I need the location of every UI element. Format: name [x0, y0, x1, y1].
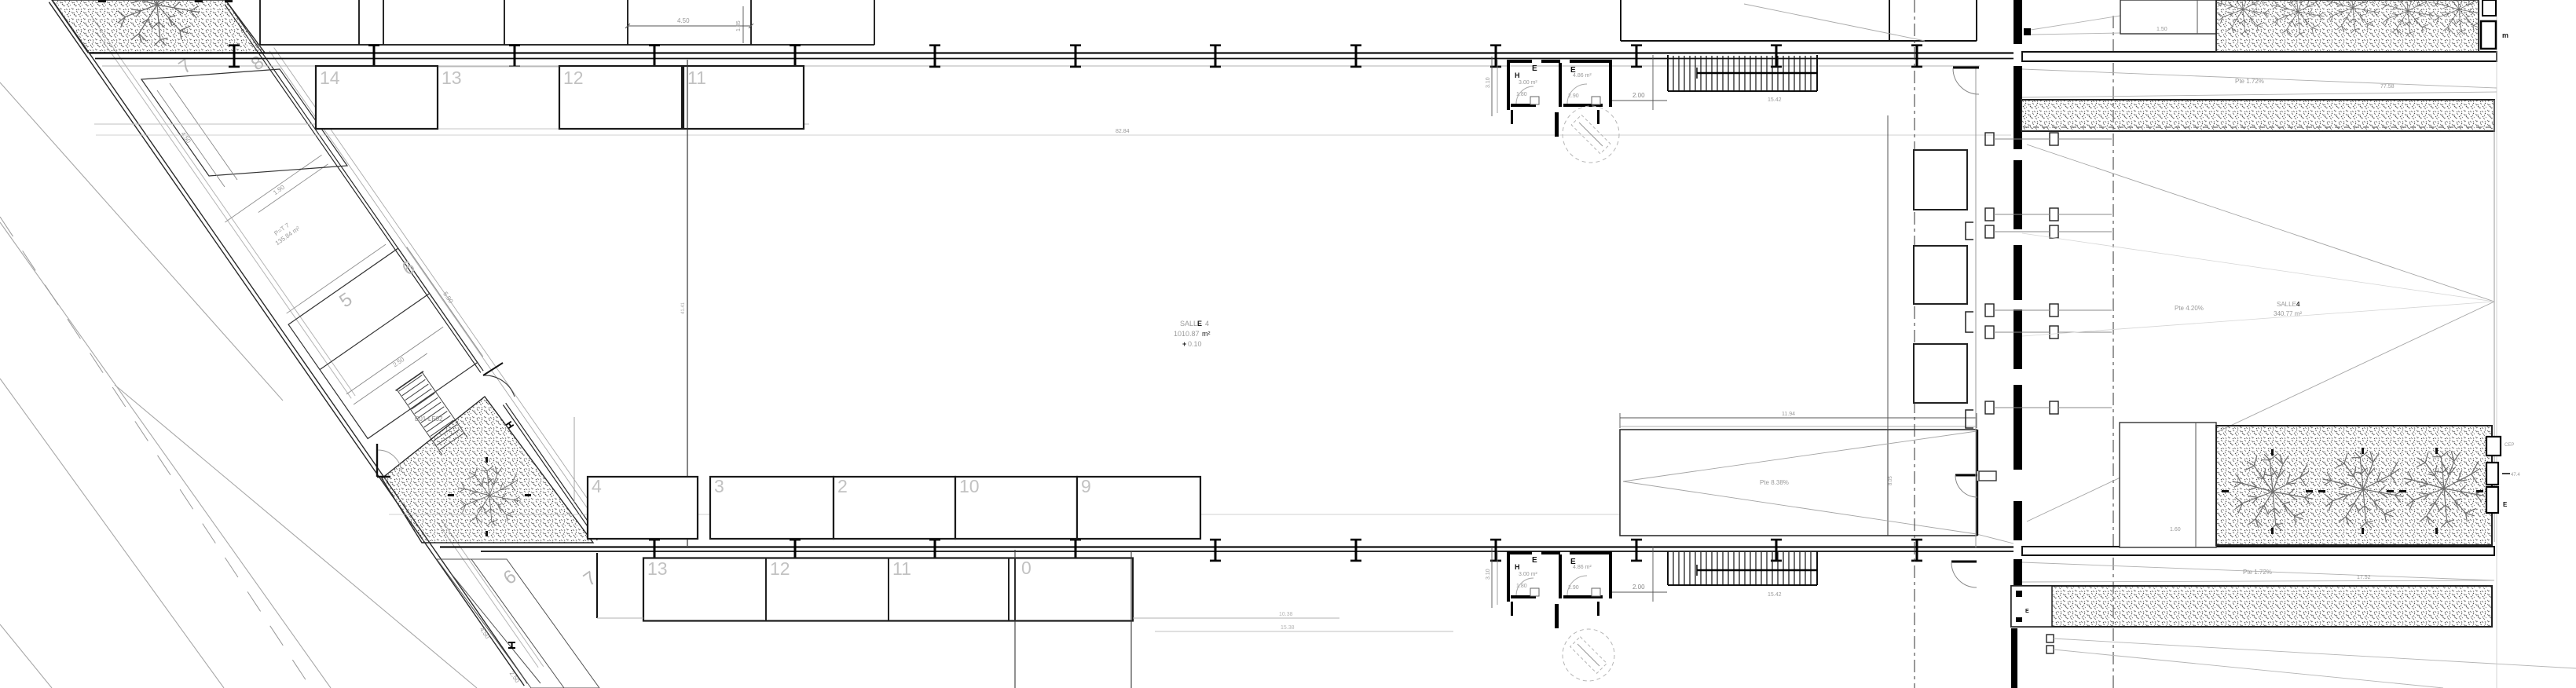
svg-text:m²: m²	[1202, 330, 1211, 338]
svg-text:1.50: 1.50	[2156, 27, 2167, 32]
svg-text:1.60: 1.60	[2170, 527, 2181, 532]
svg-text:12: 12	[563, 68, 584, 88]
svg-text:SALLE: SALLE	[2277, 301, 2296, 308]
svg-text:E: E	[2025, 609, 2029, 614]
svg-text:1010.87: 1010.87	[1174, 330, 1200, 338]
svg-text:Pte 1.72%: Pte 1.72%	[2243, 569, 2272, 576]
svg-text:0.10: 0.10	[1188, 340, 1202, 348]
svg-text:E: E	[1197, 320, 1202, 328]
svg-text:4: 4	[1205, 320, 1209, 328]
svg-text:15.42: 15.42	[1768, 97, 1782, 103]
svg-text:15.42: 15.42	[1768, 592, 1782, 598]
svg-text:77.58: 77.58	[2380, 84, 2395, 90]
svg-text:+: +	[1182, 340, 1186, 348]
svg-text:13: 13	[442, 68, 462, 88]
svg-text:12: 12	[770, 558, 790, 579]
svg-text:4: 4	[592, 476, 602, 496]
svg-text:Pte 1.72%: Pte 1.72%	[2235, 78, 2264, 85]
svg-text:3: 3	[714, 476, 724, 496]
svg-text:E: E	[2503, 501, 2508, 508]
svg-text:4: 4	[2296, 301, 2300, 308]
svg-text:SALL: SALL	[1180, 320, 1197, 328]
svg-text:10.38: 10.38	[1279, 612, 1293, 617]
svg-text:H: H	[1515, 71, 1520, 79]
svg-text:47.4: 47.4	[2511, 473, 2520, 478]
svg-text:4.86 m²: 4.86 m²	[1573, 73, 1592, 79]
svg-text:10: 10	[959, 476, 980, 496]
svg-text:8.05: 8.05	[1889, 476, 1893, 485]
svg-text:14: 14	[320, 68, 340, 88]
svg-text:2.00: 2.00	[1632, 584, 1645, 591]
svg-text:E: E	[1532, 556, 1537, 565]
svg-text:2: 2	[837, 476, 848, 496]
svg-text:4.86 m²: 4.86 m²	[1573, 565, 1592, 570]
svg-text:2.00: 2.00	[1632, 92, 1645, 99]
svg-text:4.50: 4.50	[677, 17, 690, 24]
svg-text:0: 0	[1021, 558, 1031, 578]
svg-text:11.94: 11.94	[1782, 412, 1795, 417]
svg-text:Pte 8.38%: Pte 8.38%	[1760, 479, 1789, 486]
svg-text:3.10: 3.10	[1486, 569, 1491, 580]
svg-text:m: m	[2502, 31, 2508, 39]
svg-text:41.41: 41.41	[681, 302, 686, 314]
svg-text:E01-LE02: E01-LE02	[415, 415, 443, 423]
svg-text:1.85: 1.85	[736, 20, 742, 31]
svg-text:11: 11	[892, 558, 911, 579]
svg-text:340.77 m²: 340.77 m²	[2274, 310, 2302, 317]
svg-text:H: H	[1515, 563, 1520, 571]
svg-text:Pte 4.20%: Pte 4.20%	[2175, 305, 2204, 312]
svg-text:9: 9	[1081, 476, 1091, 496]
svg-text:3.10: 3.10	[1486, 77, 1491, 88]
svg-text:E: E	[1532, 64, 1537, 73]
svg-text:3.00 m²: 3.00 m²	[1519, 572, 1537, 577]
svg-text:CEP: CEP	[2505, 443, 2514, 448]
svg-text:17.52: 17.52	[2357, 575, 2371, 580]
svg-text:11: 11	[687, 68, 706, 88]
svg-text:13: 13	[647, 558, 668, 579]
svg-text:15.38: 15.38	[1281, 625, 1295, 631]
svg-text:82.84: 82.84	[1116, 129, 1130, 134]
svg-text:3.00 m²: 3.00 m²	[1519, 80, 1537, 86]
